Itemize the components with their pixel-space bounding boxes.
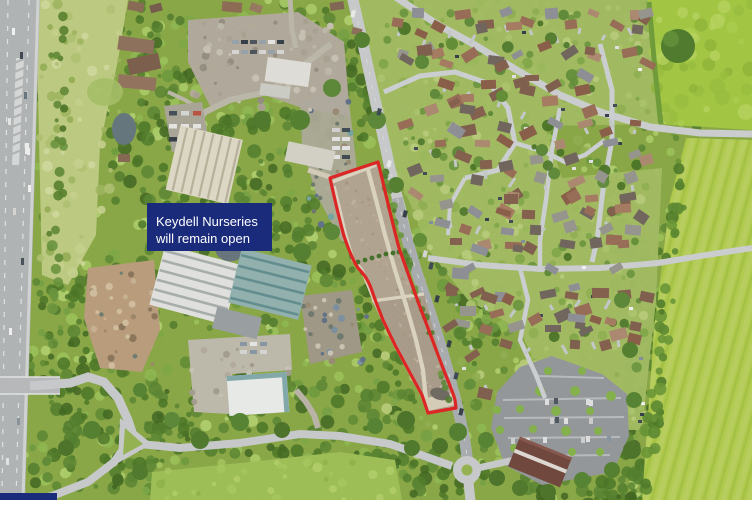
- svg-text:Keydell Nurseries: Keydell Nurseries: [156, 214, 258, 229]
- svg-text:will remain open: will remain open: [155, 231, 250, 246]
